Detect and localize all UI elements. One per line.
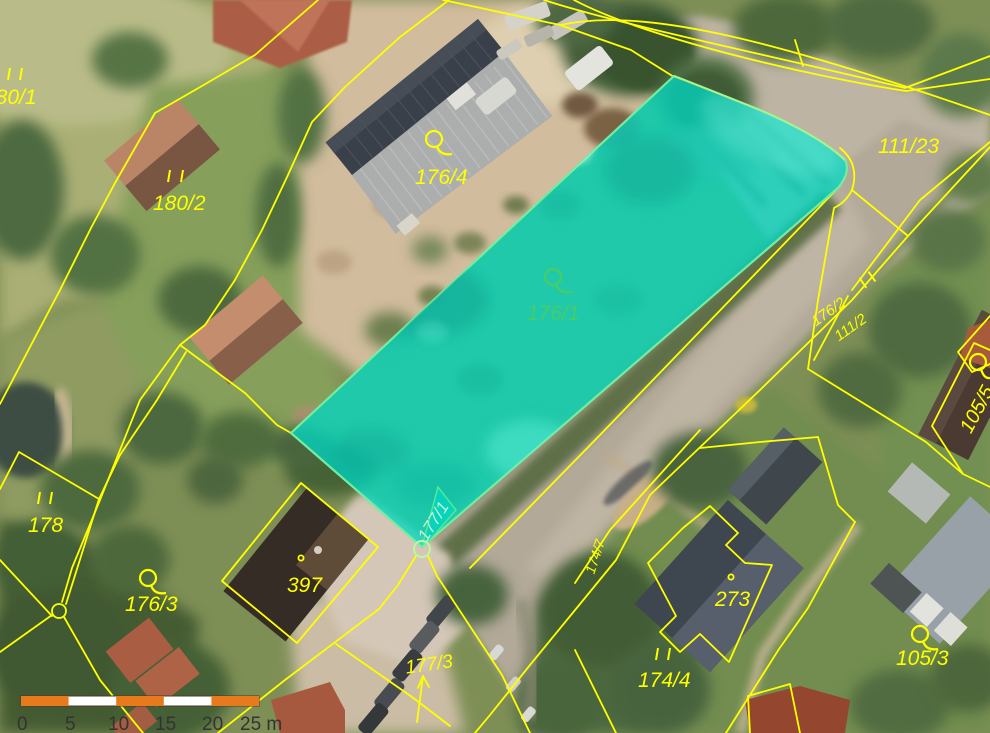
svg-text:111/23: 111/23: [878, 135, 939, 158]
svg-text:0: 0: [17, 714, 28, 733]
svg-text:273: 273: [714, 588, 750, 611]
svg-text:180/1: 180/1: [0, 86, 37, 109]
svg-text:397: 397: [287, 574, 323, 597]
svg-text:20: 20: [202, 714, 223, 733]
svg-text:10: 10: [108, 714, 129, 733]
svg-text:174/4: 174/4: [638, 669, 691, 692]
svg-text:180/2: 180/2: [153, 192, 206, 215]
svg-text:25 m: 25 m: [240, 714, 282, 733]
svg-text:15: 15: [155, 714, 176, 733]
svg-text:105/3: 105/3: [896, 647, 949, 670]
svg-text:178: 178: [28, 514, 63, 537]
svg-text:5: 5: [65, 714, 76, 733]
svg-text:176/1: 176/1: [527, 302, 580, 325]
svg-text:176/4: 176/4: [415, 166, 468, 189]
svg-text:176/3: 176/3: [125, 593, 178, 616]
